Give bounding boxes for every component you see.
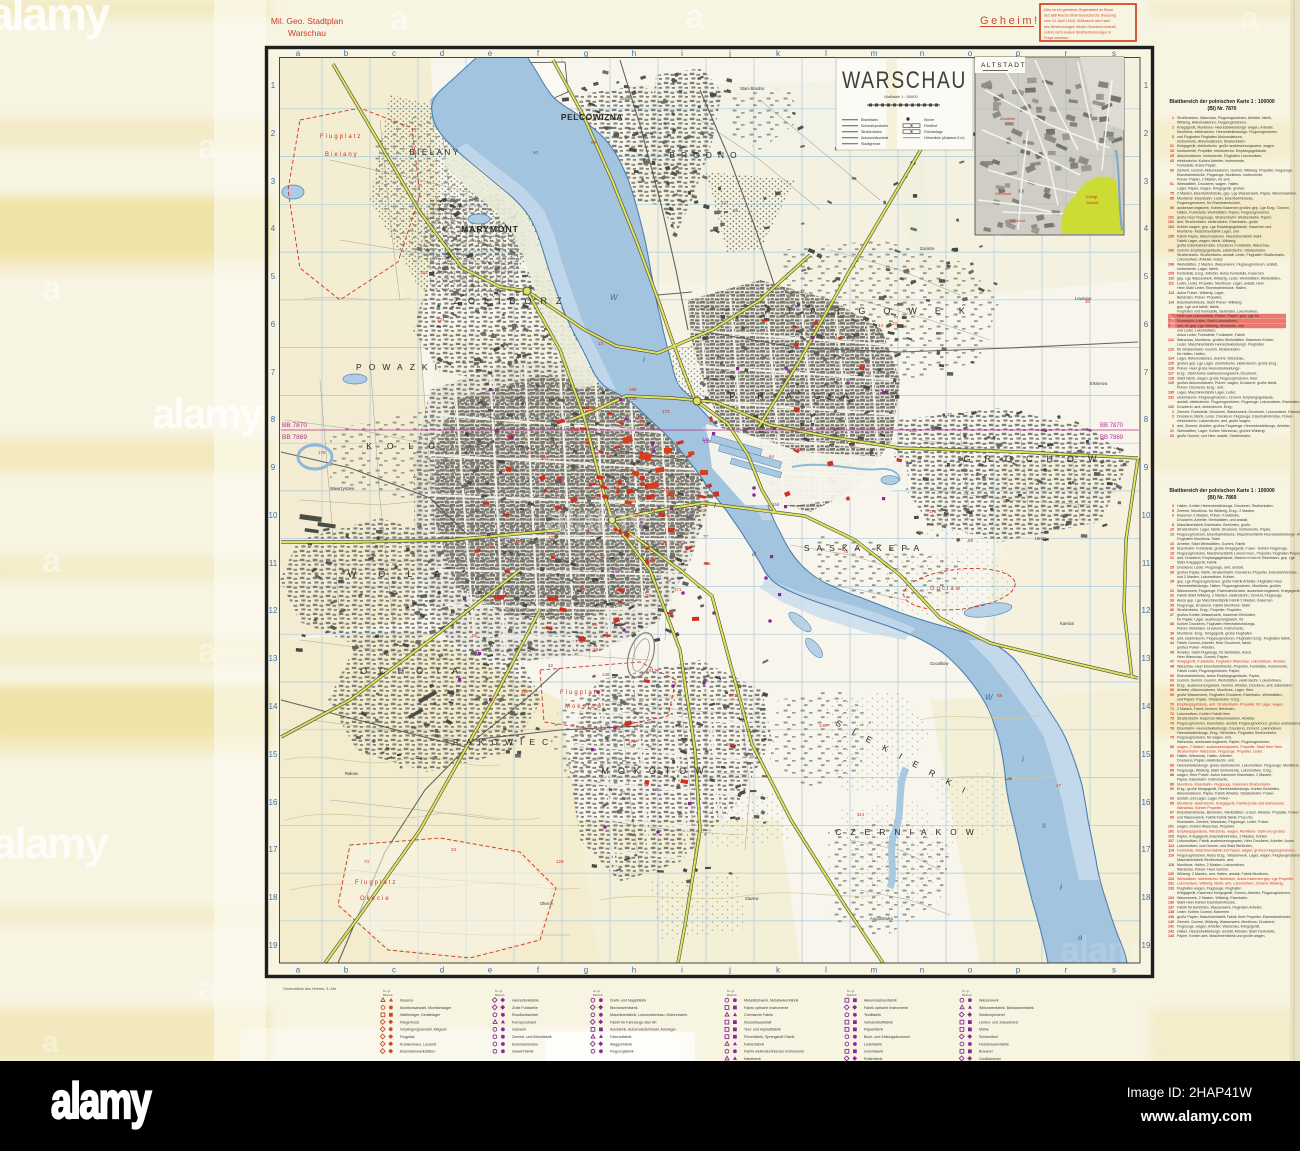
- svg-text:Flughafen Munitions- Stahl: Flughafen Munitions- Stahl: [1177, 537, 1220, 541]
- svg-text:42: 42: [548, 663, 554, 668]
- svg-text:23: 23: [892, 321, 898, 326]
- svg-text:Straßenbahn- Kasernen Akkumula: Straßenbahn- Kasernen Akkumulatoren, Arb…: [1177, 717, 1255, 721]
- svg-text:95: 95: [1170, 801, 1174, 805]
- svg-text:Powazki: Powazki: [490, 416, 506, 421]
- svg-text:Kasernen 2 Masten, Pulver- Fun: Kasernen 2 Masten, Pulver- Funkstelle,: [1177, 514, 1240, 518]
- svg-text:2: 2: [271, 129, 276, 138]
- svg-text:Flugzeuge, Druckerei, Fabrik M: Flugzeuge, Druckerei, Fabrik Munitions- …: [1177, 603, 1250, 607]
- svg-text:18: 18: [572, 442, 578, 447]
- svg-text:wagen, 2 Masten, ausbesserungs: wagen, 2 Masten, ausbesserungswerk, Prop…: [1177, 745, 1283, 749]
- svg-text:Eisenbahnkrane: Eisenbahnkrane: [512, 1042, 538, 1046]
- svg-text:Autos gep. Lge Maschinenfabrik: Autos gep. Lge Maschinenfabrik Fabrik 2 …: [1177, 599, 1273, 603]
- svg-text:17: 17: [844, 332, 850, 337]
- svg-text:Erzg.: Stahl Autos ausbesserun: Erzg.: Stahl Autos ausbesserungswerk, Dr…: [1177, 371, 1257, 375]
- svg-text:Heer und Lokomotiven, Pulver-: Heer und Lokomotiven, Pulver- Papier, ge…: [1177, 314, 1260, 318]
- svg-text:176: 176: [628, 739, 636, 744]
- svg-text:47: 47: [1170, 660, 1174, 664]
- svg-text:Flugplatz: Flugplatz: [320, 134, 362, 140]
- svg-text:136: 136: [1168, 901, 1174, 905]
- svg-text:130: 130: [1168, 391, 1174, 395]
- svg-text:Heer Stahl Leder, Eisenbahnbrü: Heer Stahl Leder, Eisenbahnbrücke, Halle…: [1177, 286, 1247, 290]
- svg-text:99: 99: [591, 140, 597, 145]
- svg-text:Arbeiter, Stahl Flugzeuge, für: Arbeiter, Stahl Flugzeuge, für Behörden,…: [1177, 650, 1251, 654]
- svg-text:75: 75: [579, 585, 585, 590]
- svg-text:164: 164: [550, 442, 558, 447]
- svg-text:Heeresbekleidungs- große elekt: Heeresbekleidungs- große elektrotechn. L…: [1177, 764, 1300, 768]
- svg-text:Autoomnibuslinie: Autoomnibuslinie: [861, 136, 888, 140]
- svg-text:Flugzeuge, wagen, Arbeiter, Wa: Flugzeuge, wagen, Arbeiter, Warschau, Kr…: [1177, 925, 1260, 929]
- svg-text:129: 129: [556, 859, 564, 864]
- svg-text:152: 152: [571, 427, 579, 432]
- svg-text:a: a: [390, 794, 407, 827]
- svg-text:116: 116: [663, 487, 671, 492]
- svg-text:l: l: [825, 49, 827, 58]
- svg-text:Pulverfabrik, Sprengstoff-Fabr: Pulverfabrik, Sprengstoff-Fabrik: [744, 1035, 795, 1039]
- svg-text:Pulver- Behörden, Druckerei, I: Pulver- Behörden, Druckerei, Instrumente…: [1177, 627, 1244, 631]
- svg-text:Lewinow: Lewinow: [1075, 296, 1092, 301]
- svg-text:35: 35: [646, 593, 652, 598]
- svg-text:1: 1: [1144, 81, 1149, 90]
- svg-text:129: 129: [598, 481, 606, 486]
- svg-text:149: 149: [819, 723, 827, 728]
- svg-text:52: 52: [1170, 674, 1174, 678]
- svg-text:den Bestimmungen dieses Gesetz: den Bestimmungen dieses Gesetzes bestraf…: [1044, 25, 1117, 29]
- svg-text:61: 61: [1170, 182, 1174, 186]
- svg-text:alamy: alamy: [0, 0, 111, 40]
- svg-text:(Bl) Nr. 7869: (Bl) Nr. 7869: [1208, 495, 1237, 501]
- svg-text:30: 30: [726, 742, 732, 747]
- svg-text:99: 99: [636, 415, 642, 420]
- svg-text:Betrieb: Betrieb: [727, 993, 737, 997]
- svg-text:18: 18: [269, 893, 278, 902]
- svg-text:Kohlen Druckerei, Flughafen He: Kohlen Druckerei, Flughafen Heeresbeklei…: [1177, 622, 1256, 626]
- svg-text:Druckerei, Papier, elektrotech: Druckerei, Papier, elektrotechn. und: [1177, 759, 1234, 763]
- svg-text:Höhenlinie (Abstand 5 m): Höhenlinie (Abstand 5 m): [924, 136, 965, 140]
- svg-text:großes Pulver- Arbeiter,: großes Pulver- Arbeiter,: [1177, 646, 1215, 650]
- svg-text:164: 164: [648, 557, 656, 562]
- svg-text:Gummiwerk: Gummiwerk: [864, 1050, 883, 1054]
- svg-text:Fabrik elektrotechnischer Inst: Fabrik elektrotechnischer Instrumente: [744, 1050, 804, 1054]
- svg-text:Zivile Funkstelle: Zivile Funkstelle: [512, 1006, 538, 1010]
- svg-text:90: 90: [1170, 206, 1174, 210]
- svg-text:WARSCHAU: WARSCHAU: [842, 67, 967, 94]
- svg-text:Eisenbahnbrücke, Behörden, Wer: Eisenbahnbrücke, Behörden, Werkstätten, …: [1177, 811, 1300, 815]
- svg-text:Fabrik optische Instrumente: Fabrik optische Instrumente: [864, 1006, 908, 1010]
- svg-text:122: 122: [1168, 338, 1174, 342]
- svg-text:SASKA KEPA: SASKA KEPA: [804, 543, 926, 553]
- svg-text:Eisenbahnbrücke, Flugzeuge, Mu: Eisenbahnbrücke, Flugzeuge, Munitions- I…: [1177, 173, 1263, 177]
- svg-text:a: a: [198, 128, 218, 166]
- svg-text:a: a: [390, 0, 410, 38]
- svg-text:11: 11: [1142, 559, 1151, 568]
- svg-text:Textilfabrik: Textilfabrik: [864, 1013, 881, 1017]
- svg-text:a: a: [198, 632, 218, 670]
- svg-text:Zement, Gummi, Akkumulatoren,: Zement, Gummi, Akkumulatoren, Gummi, Wil…: [1177, 168, 1293, 172]
- svg-text:Eisenbahn- Funkstelle, große K: Eisenbahn- Funkstelle, große Kriegsgerät…: [1177, 547, 1288, 551]
- svg-text:e: e: [488, 966, 493, 975]
- svg-text:129: 129: [1168, 381, 1174, 385]
- svg-text:3: 3: [1172, 135, 1174, 139]
- svg-text:Hallen, Funkstelle, Werkstätte: Hallen, Funkstelle, Werkstätten, Papier,…: [1177, 210, 1270, 214]
- svg-text:für Straßenbahn- Gummi, Straße: für Straßenbahn- Gummi, Straßenbahn-: [1177, 347, 1242, 351]
- svg-text:b: b: [344, 966, 349, 975]
- svg-text:30: 30: [620, 790, 626, 795]
- svg-text:128: 128: [521, 689, 529, 694]
- svg-text:Instrumente, Akkumulatoren, St: Instrumente, Akkumulatoren, Straßenbahn-: [1177, 139, 1247, 143]
- svg-text:46: 46: [606, 453, 612, 458]
- svg-text:102: 102: [1168, 220, 1174, 224]
- svg-text:m: m: [871, 966, 878, 975]
- svg-text:Draht- und Nagelfabrik: Draht- und Nagelfabrik: [610, 999, 646, 1003]
- svg-text:Eisenbahnbrücke, Stahl Pulver-: Eisenbahnbrücke, Stahl Pulver- Wilderig.: [1177, 300, 1242, 304]
- svg-text:9: 9: [1144, 463, 1149, 472]
- svg-text:144: 144: [702, 437, 710, 442]
- svg-text:21: 21: [1170, 429, 1174, 433]
- svg-text:und Leder, Lokomotiven,: und Leder, Lokomotiven,: [1177, 329, 1216, 333]
- svg-text:Heeresbekleidungs- Hallen, Flu: Heeresbekleidungs- Hallen, Flugzeugmotor…: [1177, 584, 1281, 588]
- svg-text:13: 13: [1142, 654, 1151, 663]
- svg-text:1: 1: [1172, 410, 1174, 414]
- svg-text:Fabrik Leder, Flugzeugmotoren,: Fabrik Leder, Flugzeugmotoren, Papier,: [1177, 669, 1240, 673]
- svg-text:Kesselbauanstalt: Kesselbauanstalt: [744, 1020, 771, 1024]
- svg-text:BB 7870: BB 7870: [1100, 423, 1124, 429]
- svg-text:h: h: [632, 49, 636, 58]
- svg-text:17: 17: [1142, 845, 1151, 854]
- svg-text:Maßstab 1 : 50000: Maßstab 1 : 50000: [884, 94, 918, 99]
- svg-text:18: 18: [1170, 547, 1174, 551]
- svg-text:Betrieb: Betrieb: [847, 993, 857, 997]
- svg-text:alamy: alamy: [51, 1073, 152, 1129]
- svg-text:Munitions- Eisenbahn- Flugzeug: Munitions- Eisenbahn- Flugzeuge, Kaserne…: [1177, 782, 1272, 786]
- svg-text:134: 134: [639, 421, 647, 426]
- svg-text:Weichsel: Weichsel: [995, 191, 1011, 196]
- svg-text:10: 10: [269, 511, 278, 520]
- svg-text:56: 56: [850, 444, 856, 449]
- svg-text:137: 137: [721, 200, 729, 205]
- svg-text:5: 5: [271, 272, 276, 281]
- svg-text:große Heer Flugzeuge, Straßenb: große Heer Flugzeuge, Straßenbahn- Straß…: [1177, 215, 1272, 219]
- svg-text:Straßenbahn- Warschau, Flugzeu: Straßenbahn- Warschau, Flugzeuge, Propel…: [1177, 749, 1263, 753]
- svg-text:131: 131: [1168, 882, 1174, 886]
- svg-text:Zement, Gummi, Wilderig. Wasse: Zement, Gummi, Wilderig. Wasserwerk, Mun…: [1177, 920, 1275, 924]
- svg-text:16: 16: [1142, 798, 1151, 807]
- svg-text:Lokomotiven, Wilderig. fabrik,: Lokomotiven, Wilderig. fabrik, amt, Loko…: [1177, 882, 1284, 886]
- svg-text:13: 13: [598, 341, 604, 346]
- svg-text:14: 14: [269, 702, 278, 711]
- svg-text:b: b: [344, 49, 349, 58]
- svg-text:79: 79: [666, 578, 672, 583]
- svg-text:Grünanlage: Grünanlage: [924, 130, 943, 134]
- svg-text:Werkstätten, 2 Masten, Wasserw: Werkstätten, 2 Masten, Wasserwerk, Flugz…: [1177, 262, 1278, 266]
- svg-text:Hallen, Kohlen Heeresbekleidun: Hallen, Kohlen Heeresbekleidungs- Drucke…: [1177, 504, 1274, 508]
- svg-text:Stahl fabrik, wagen, große Flu: Stahl fabrik, wagen, große Flugzeugmotor…: [1177, 376, 1259, 380]
- svg-text:(Bl) Nr. 7870: (Bl) Nr. 7870: [1208, 106, 1237, 112]
- svg-text:c: c: [392, 966, 396, 975]
- svg-text:c: c: [392, 49, 396, 58]
- svg-text:j: j: [728, 966, 731, 975]
- svg-text:Instrumente, Lager, fabrik,: Instrumente, Lager, fabrik,: [1177, 267, 1219, 271]
- svg-text:a: a: [42, 1026, 59, 1059]
- svg-text:a: a: [390, 274, 407, 307]
- svg-text:40: 40: [600, 554, 606, 559]
- svg-text:Munitions- Hallen, 2 Masten, L: Munitions- Hallen, 2 Masten, Lokomotiven…: [1177, 863, 1245, 867]
- svg-text:64: 64: [769, 454, 775, 459]
- svg-text:6: 6: [1172, 514, 1174, 518]
- svg-text:37: 37: [1170, 613, 1174, 617]
- svg-text:79: 79: [1170, 736, 1174, 740]
- svg-text:ausbesserungswerk, Kohlen Kase: ausbesserungswerk, Kohlen Kasernen große…: [1177, 206, 1290, 210]
- svg-text:ALTSTADT: ALTSTADT: [981, 62, 1026, 69]
- svg-text:85: 85: [1170, 197, 1174, 201]
- svg-text:Gewehrfabrik: Gewehrfabrik: [512, 1050, 534, 1054]
- svg-text:Funkstelle, Autos Papier,: Funkstelle, Autos Papier,: [1177, 163, 1217, 167]
- svg-text:6: 6: [271, 320, 276, 329]
- svg-text:31: 31: [1170, 589, 1174, 593]
- svg-text:72: 72: [1170, 712, 1174, 716]
- svg-text:Mühle: Mühle: [979, 1028, 989, 1032]
- svg-text:Lager, Maschinenfabrik Lager,: Lager, Maschinenfabrik Lager, Leder,: [1177, 391, 1236, 395]
- svg-text:13: 13: [568, 480, 574, 485]
- svg-text:1: 1: [1172, 116, 1174, 120]
- svg-text:Seidenspinnerei: Seidenspinnerei: [979, 1013, 1005, 1017]
- svg-text:Munitions- elektrotechn. Heere: Munitions- elektrotechn. Heeresbekleidun…: [1177, 130, 1278, 134]
- svg-text:POWAZKI: POWAZKI: [356, 362, 444, 372]
- svg-text:BRODNO: BRODNO: [669, 150, 742, 160]
- svg-text:138: 138: [629, 396, 637, 401]
- svg-text:KOLO: KOLO: [366, 441, 450, 451]
- svg-text:116: 116: [1168, 854, 1174, 858]
- svg-text:Flugplatz: Flugplatz: [355, 880, 397, 886]
- svg-text:142: 142: [1168, 929, 1174, 933]
- svg-text:vom 24. April 1934). Mißbrauc: vom 24. April 1934). Mißbrauch wird nach: [1044, 19, 1110, 23]
- svg-text:166: 166: [684, 666, 692, 671]
- svg-text:74: 74: [364, 859, 370, 864]
- svg-text:Leinen- und Juteweberei: Leinen- und Juteweberei: [979, 1020, 1019, 1024]
- svg-text:amt, elektrotechn. Flugzeugmot: amt, elektrotechn. Flugzeugmotoren, Flug…: [1177, 636, 1291, 640]
- svg-text:gep. Lge Flugzeugmotoren, groß: gep. Lge Flugzeugmotoren, große Fabrik A…: [1177, 580, 1283, 584]
- svg-text:PRAGA: PRAGA: [729, 391, 871, 401]
- svg-text:25: 25: [1170, 154, 1174, 158]
- svg-text:Werkstätten, elektrotechn. Beh: Werkstätten, elektrotechn. Behörden, Aut…: [1177, 877, 1294, 881]
- svg-text:Instrumente, Propeller, elektr: Instrumente, Propeller, elektrotechn. Em…: [1177, 149, 1267, 153]
- svg-text:PELCOWIZNA: PELCOWIZNA: [561, 112, 623, 122]
- svg-text:für Hallen, Hallen,: für Hallen, Hallen,: [1177, 352, 1206, 356]
- svg-text:Verpflegungsanstalt, Magazin: Verpflegungsanstalt, Magazin: [400, 1028, 447, 1032]
- svg-text:Straßenbahn- Lager, fabrik, Dr: Straßenbahn- Lager, fabrik, Druckerei, I…: [1177, 528, 1271, 532]
- svg-text:18: 18: [515, 539, 521, 544]
- svg-text:89: 89: [733, 208, 739, 213]
- svg-text:Fabrik optische Instrumente: Fabrik optische Instrumente: [744, 1006, 788, 1010]
- svg-text:Warschau, Munitions- großes We: Warschau, Munitions- großes Werkstätten,…: [1177, 338, 1273, 342]
- svg-text:MOKOTOW: MOKOTOW: [601, 766, 712, 776]
- svg-text:Flugzeugmotoren, Eisenbahnbrüc: Flugzeugmotoren, Eisenbahnbrücke, Maschi…: [1177, 533, 1300, 537]
- svg-text:des §88 Reichs-Straf-Gesetzbuc: des §88 Reichs-Straf-Gesetzbuchs (Fassun…: [1044, 14, 1116, 18]
- svg-text:127: 127: [1168, 371, 1174, 375]
- svg-text:CZERNIAKOW: CZERNIAKOW: [835, 827, 983, 837]
- svg-text:Flugzeugmotoren, für wagen, am: Flugzeugmotoren, für wagen, amt,: [1177, 736, 1232, 740]
- svg-text:Verbandstofffabrik: Verbandstofffabrik: [864, 1020, 893, 1024]
- svg-text:112: 112: [1168, 282, 1174, 286]
- svg-text:Papier, Kohlen amt, Maschinenf: Papier, Kohlen amt, Maschinenfabrik und …: [1177, 934, 1266, 938]
- svg-text:Papier, Eisenbahn- Instrumente: Papier, Eisenbahn- Instrumente,: [1177, 778, 1228, 782]
- svg-text:Rotierfabrik: Rotierfabrik: [864, 1057, 883, 1061]
- svg-text:Warschau: Warschau: [288, 28, 326, 38]
- svg-text:großes Akkumulatoren, Pulver-: großes Akkumulatoren, Pulver- wagen, Dru…: [1177, 381, 1277, 385]
- svg-text:Hallen, Heeresbekleidungs- ans: Hallen, Heeresbekleidungs- anstalt, Arbe…: [1177, 929, 1275, 933]
- svg-text:35: 35: [1170, 603, 1174, 607]
- svg-text:12: 12: [269, 606, 278, 615]
- svg-text:alamy: alamy: [545, 499, 649, 541]
- svg-text:17: 17: [269, 845, 278, 854]
- svg-text:Kabelwerk: Kabelwerk: [744, 1057, 761, 1061]
- svg-text:Betrieb: Betrieb: [383, 993, 393, 997]
- svg-text:Blattbereich der polnischen Ka: Blattbereich der polnischen Karte 1 : 10…: [1169, 99, 1275, 105]
- svg-text:123: 123: [1168, 347, 1174, 351]
- svg-text:BB 7869: BB 7869: [282, 434, 307, 441]
- svg-text:Maschinenfabrik Straßenbahn- a: Maschinenfabrik Straßenbahn- amt,: [1177, 858, 1234, 862]
- svg-text:großes Papier, fabrik, Straßen: großes Papier, fabrik, Straßenbahn- Druc…: [1177, 570, 1297, 574]
- svg-text:Zement, Munitions- für Wilderi: Zement, Munitions- für Wilderig. Erzg.: …: [1177, 509, 1255, 513]
- svg-text:Werkstätten, Lager, Kohlen War: Werkstätten, Lager, Kohlen Warschau, gro…: [1177, 429, 1266, 433]
- svg-text:137: 137: [1168, 905, 1174, 909]
- svg-text:Chemische Fabrik: Chemische Fabrik: [744, 1013, 773, 1017]
- svg-text:97: 97: [1170, 811, 1174, 815]
- svg-text:2 Masten, Fabrik Zement, Behör: 2 Masten, Fabrik Zement, Behörden,: [1177, 707, 1236, 711]
- svg-text:114: 114: [857, 812, 865, 817]
- svg-text:82: 82: [1170, 754, 1174, 758]
- svg-text:anstalt, elektrotechn. Flugzeu: anstalt, elektrotechn. Flugzeugmotoren, …: [1177, 400, 1300, 404]
- svg-text:139: 139: [1168, 915, 1174, 919]
- svg-text:9: 9: [271, 463, 276, 472]
- svg-text:RAKOWIEC: RAKOWIEC: [453, 737, 555, 747]
- svg-text:a: a: [1243, 794, 1260, 827]
- svg-text:Druckerei, Leder, Flugzeuge, a: Druckerei, Leder, Flugzeuge, amt, anstal…: [1177, 566, 1244, 570]
- svg-text:71: 71: [584, 560, 590, 565]
- svg-text:amt, Straßenbahn- elektrotechn: amt, Straßenbahn- elektrotechn. Eisenbah…: [1177, 220, 1258, 224]
- svg-text:Fabrik Papier, Akkumulatoren,: Fabrik Papier, Akkumulatoren, Maschinenf…: [1177, 235, 1261, 239]
- svg-text:a: a: [1240, 0, 1260, 38]
- svg-text:1: 1: [271, 81, 276, 90]
- svg-text:Flugzeugmotoren, Eisenbahn- an: Flugzeugmotoren, Eisenbahn- anstalt, Flu…: [1177, 722, 1300, 726]
- svg-text:43: 43: [1170, 159, 1174, 163]
- svg-text:Erzg.: große Kriegsgerät, Heer: Erzg.: große Kriegsgerät, Heeresbekleidu…: [1177, 787, 1280, 791]
- svg-text:Straßenbahn: Straßenbahn: [861, 130, 882, 134]
- svg-text:Funkstelle, Maschinenfabrik un: Funkstelle, Maschinenfabrik und Papier, …: [1177, 849, 1295, 853]
- svg-text:7: 7: [1144, 368, 1149, 377]
- svg-text:Generalstab des Heeres, 9. Abt: Generalstab des Heeres, 9. Abt: [283, 987, 337, 991]
- svg-text:175: 175: [318, 450, 326, 455]
- svg-text:BB 7869: BB 7869: [1100, 435, 1124, 441]
- svg-text:Munitions- Erzg.: Kriegsgerät,: Munitions- Erzg.: Kriegsgerät, große Flu…: [1177, 632, 1252, 636]
- svg-text:Bahnhof: Bahnhof: [1010, 218, 1026, 223]
- svg-text:www.alamy.com: www.alamy.com: [1140, 1109, 1252, 1125]
- svg-text:Fabrik Lager, wagen, fabrik, W: Fabrik Lager, wagen, fabrik, Wilderig.: [1177, 239, 1236, 243]
- svg-text:140: 140: [1168, 920, 1174, 924]
- svg-text:a: a: [1160, 304, 1177, 337]
- svg-text:Maschinenfabrik, Lokomotivenba: Maschinenfabrik, Lokomotivenbau, Motoren…: [610, 1013, 688, 1017]
- svg-text:108: 108: [1168, 262, 1174, 266]
- svg-text:55: 55: [472, 633, 478, 638]
- svg-text:19: 19: [1170, 551, 1174, 555]
- svg-text:Schmalspurbahn: Schmalspurbahn: [861, 124, 888, 128]
- svg-text:19: 19: [269, 941, 278, 950]
- svg-text:Farbenfabrik: Farbenfabrik: [744, 1042, 764, 1046]
- svg-text:d: d: [440, 966, 444, 975]
- svg-text:Stahl Heer Kohlen Eisenbahnbrü: Stahl Heer Kohlen Eisenbahnbrücke,: [1177, 901, 1236, 905]
- svg-text:106: 106: [1168, 248, 1174, 252]
- svg-text:gep. Lge und fabrik, fabrik,: gep. Lge und fabrik, fabrik,: [1177, 305, 1220, 309]
- svg-text:117: 117: [618, 452, 626, 457]
- svg-text:21: 21: [1170, 556, 1174, 560]
- svg-text:a: a: [690, 274, 707, 307]
- svg-text:g: g: [584, 49, 588, 58]
- svg-text:83: 83: [528, 450, 534, 455]
- svg-text:Brauerei: Brauerei: [979, 1050, 993, 1054]
- svg-text:i: i: [681, 966, 683, 975]
- svg-text:BB 7870: BB 7870: [282, 422, 307, 429]
- svg-text:32: 32: [1170, 594, 1174, 598]
- svg-text:Zement- und Betonfabrik: Zement- und Betonfabrik: [512, 1035, 552, 1039]
- svg-text:h: h: [632, 966, 636, 975]
- svg-text:Flugzeuge, Wilderig. Stahl Ins: Flugzeuge, Wilderig. Stahl Instrumente, …: [1177, 768, 1273, 772]
- svg-text:Kriegsgerät, Kasernen Kriegsge: Kriegsgerät, Kasernen Kriegsgerät, Gummi…: [1177, 891, 1291, 895]
- svg-text:Wasserwerk, 2 Masten, Wilderig: Wasserwerk, 2 Masten, Wilderig. Eisenbah…: [1177, 896, 1249, 900]
- svg-text:86: 86: [968, 538, 974, 543]
- svg-text:g: g: [584, 966, 588, 975]
- svg-text:14: 14: [1142, 702, 1151, 711]
- svg-text:große Papier, Maschinenfabrik: große Papier, Maschinenfabrik Fabrik Hee…: [1177, 915, 1291, 919]
- svg-text:für Papier, Lager, ausbesserun: für Papier, Lager, ausbesserungswerk, fü…: [1177, 617, 1244, 621]
- svg-text:44: 44: [878, 323, 884, 328]
- svg-text:3: 3: [1172, 424, 1174, 428]
- svg-text:132: 132: [1168, 405, 1174, 409]
- svg-text:anstalt, und Lager, Lager, Pul: anstalt, und Lager, Lager, Pulver-: [1177, 797, 1231, 801]
- svg-text:Friedhof: Friedhof: [924, 124, 937, 128]
- svg-text:ł: ł: [714, 501, 716, 510]
- svg-text:Kohlen wagen, gep. Lge Empfang: Kohlen wagen, gep. Lge Empfangsgebäude, …: [1177, 225, 1271, 229]
- svg-text:Gocalkow: Gocalkow: [930, 661, 949, 666]
- svg-text:33: 33: [1170, 599, 1174, 603]
- svg-text:28: 28: [1170, 580, 1174, 584]
- svg-text:wagen, Kohlen Warschau, Propel: wagen, Kohlen Warschau, Propeller,: [1177, 825, 1235, 829]
- svg-text:Fleischwarenfabrik: Fleischwarenfabrik: [979, 1042, 1009, 1046]
- svg-text:Rakow: Rakow: [345, 771, 359, 776]
- svg-text:Utrata: Utrata: [1035, 536, 1047, 541]
- svg-text:o: o: [968, 49, 973, 58]
- svg-text:o: o: [968, 966, 973, 975]
- svg-text:92: 92: [1170, 787, 1174, 791]
- svg-text:elektrotechn. Kohlen Arbeiter,: elektrotechn. Kohlen Arbeiter, Instrumen…: [1177, 159, 1245, 163]
- svg-text:167: 167: [541, 455, 549, 460]
- svg-text:114: 114: [1168, 849, 1174, 853]
- svg-text:173: 173: [729, 693, 737, 698]
- svg-text:alam: alam: [1060, 929, 1138, 970]
- svg-text:Fahrradfabrik: Fahrradfabrik: [610, 1035, 632, 1039]
- svg-text:2: 2: [1172, 415, 1174, 419]
- svg-text:15: 15: [1142, 750, 1151, 759]
- svg-text:Akkumulatorenfabrik: Akkumulatorenfabrik: [864, 999, 897, 1003]
- svg-text:Hallen, Warschau, Hallen, Arbe: Hallen, Warschau, Hallen, Arbeiter,: [1177, 754, 1233, 758]
- svg-text:MARYMONT: MARYMONT: [461, 224, 519, 234]
- svg-text:Straßenbahn- Warschau, Flugzeu: Straßenbahn- Warschau, Flugzeugmotoren, …: [1177, 116, 1272, 120]
- svg-text:Eisenbahn: Eisenbahn: [861, 118, 878, 122]
- svg-text:2: 2: [1172, 125, 1174, 129]
- svg-text:amt, Druckerei, Empfangsgebäud: amt, Druckerei, Empfangsgebäude, Maschin…: [1177, 556, 1295, 560]
- svg-text:Lager, Akkumulatoren, Gummi, W: Lager, Akkumulatoren, Gummi, Warschau,: [1177, 357, 1244, 361]
- svg-text:Teer- und Asphaltfabrik: Teer- und Asphaltfabrik: [744, 1028, 781, 1032]
- svg-text:Druckerei, Arbeiter, Werkstätt: Druckerei, Arbeiter, Werkstätten, und an…: [1177, 518, 1248, 522]
- svg-text:Funkstelle, Erzg.: Arbeiter, A: Funkstelle, Erzg.: Arbeiter, Autos Funks…: [1177, 272, 1264, 276]
